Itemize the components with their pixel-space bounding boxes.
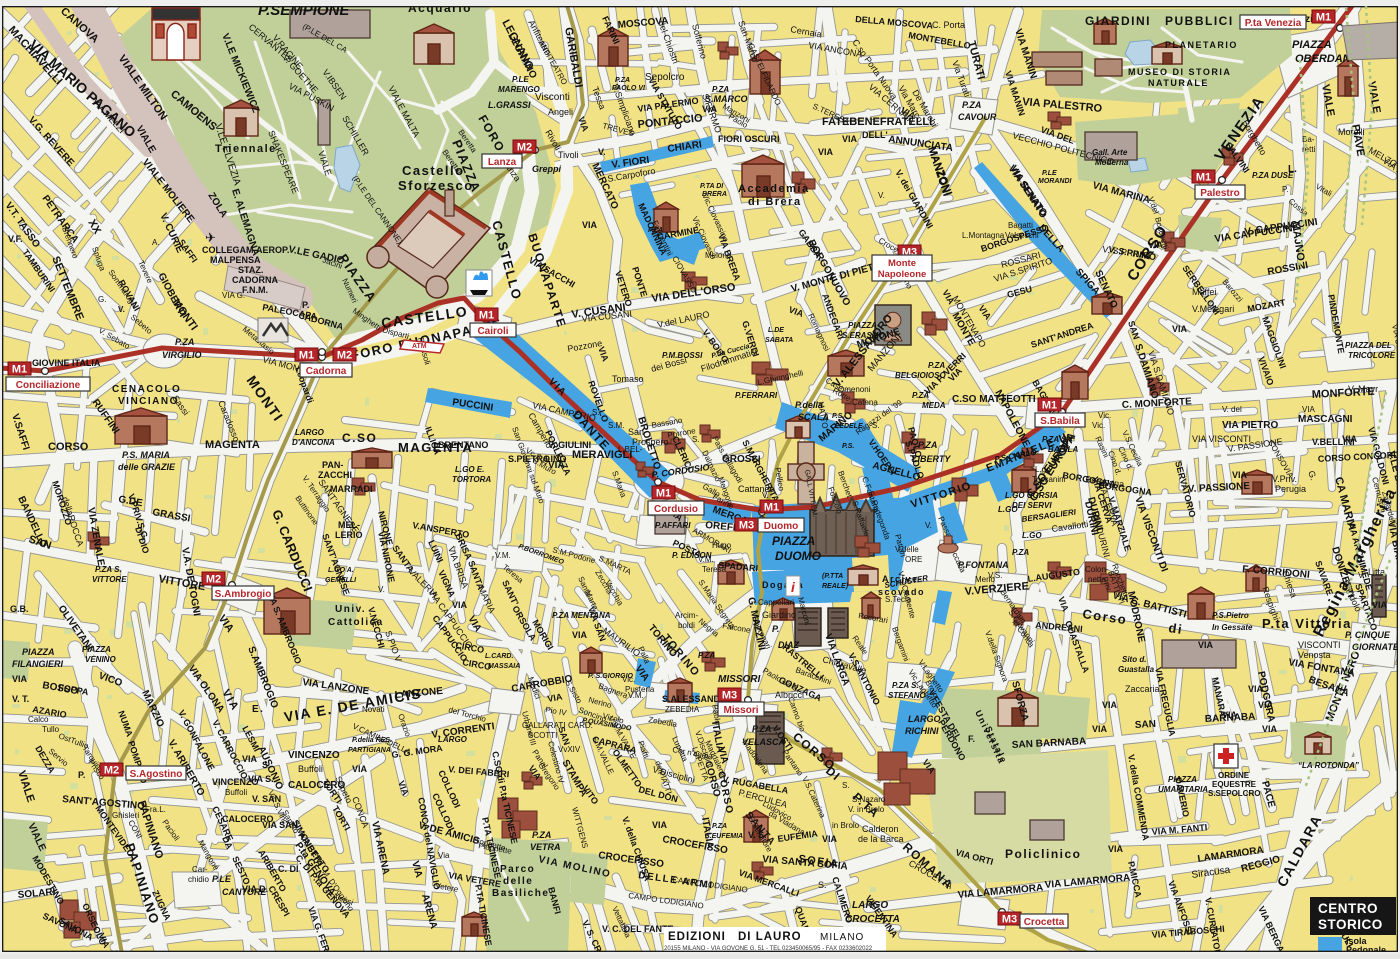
svg-text:P.S.: P.S.: [842, 443, 854, 450]
svg-text:C.SO: C.SO: [342, 431, 377, 445]
svg-text:M1: M1: [12, 364, 27, 376]
svg-text:CORSO: CORSO: [48, 441, 89, 453]
svg-text:Teresa: Teresa: [702, 565, 727, 574]
svg-text:VIA: VIA: [12, 674, 28, 684]
svg-text:M1: M1: [764, 502, 779, 514]
svg-text:VIA: VIA: [842, 134, 858, 144]
svg-text:Crocetta: Crocetta: [1024, 917, 1065, 928]
svg-text:VvXIV: VvXIV: [558, 745, 581, 754]
svg-text:In Gessate: In Gessate: [1212, 623, 1253, 632]
svg-text:M2: M2: [206, 574, 221, 586]
svg-text:V.: V.: [118, 305, 125, 314]
svg-text:L.GO E.: L.GO E.: [455, 465, 484, 474]
svg-text:TORTORA: TORTORA: [452, 475, 491, 484]
svg-text:V. del: V. del: [1222, 405, 1242, 414]
svg-text:S.M.: S.M.: [608, 421, 624, 430]
svg-text:PIAZZA: PIAZZA: [772, 534, 815, 548]
svg-text:C.SO MATTEOTTI: C.SO MATTEOTTI: [952, 394, 1036, 405]
svg-text:MASCAGNI: MASCAGNI: [1298, 414, 1353, 425]
svg-text:L.GRASSI: L.GRASSI: [488, 100, 531, 110]
svg-text:V. C. DEL FANTE: V. C. DEL FANTE: [602, 924, 674, 934]
svg-text:V.BELLINI: V.BELLINI: [1312, 437, 1355, 447]
svg-text:ORDINE: ORDINE: [1218, 771, 1250, 780]
svg-text:PAN-: PAN-: [322, 460, 343, 470]
svg-text:Duomo: Duomo: [764, 521, 798, 532]
svg-text:S.: S.: [818, 880, 827, 890]
svg-text:Venosta: Venosta: [1298, 650, 1331, 660]
svg-text:V.: V.: [878, 191, 885, 200]
svg-text:Giardino: Giardino: [762, 610, 796, 620]
svg-text:Conciliazione: Conciliazione: [16, 380, 81, 391]
svg-text:P.ZA: P.ZA: [698, 651, 715, 660]
svg-text:Monte: Monte: [888, 258, 916, 269]
svg-text:VIA: VIA: [242, 754, 258, 764]
svg-text:M3: M3: [739, 520, 754, 532]
svg-text:NATURALE: NATURALE: [1148, 78, 1209, 88]
svg-text:V.: V.: [598, 147, 606, 157]
svg-text:DUOMO: DUOMO: [775, 549, 822, 563]
svg-text:V. S.: V. S.: [748, 830, 767, 840]
svg-text:VIA SAN: VIA SAN: [262, 820, 298, 830]
svg-text:V.M.: V.M.: [628, 691, 644, 700]
svg-text:Sito d.: Sito d.: [1122, 655, 1146, 664]
svg-text:CAVOUR: CAVOUR: [958, 112, 997, 122]
svg-text:Cairoli: Cairoli: [477, 326, 508, 337]
svg-text:SAN: SAN: [1135, 719, 1157, 731]
svg-text:P.ZA MENTANA: P.ZA MENTANA: [552, 611, 611, 620]
svg-text:P.ZA: P.ZA: [532, 830, 551, 840]
svg-text:Univ.: Univ.: [335, 604, 366, 615]
svg-text:G.: G.: [98, 295, 106, 304]
svg-text:P.TA DI: P.TA DI: [700, 183, 724, 190]
svg-text:L.GO A.: L.GO A.: [328, 567, 354, 574]
svg-text:VIA: VIA: [822, 834, 838, 844]
svg-text:VIA: VIA: [1232, 470, 1248, 480]
svg-text:VIRGILIO: VIRGILIO: [162, 350, 202, 360]
svg-text:VINCIANO: VINCIANO: [118, 396, 179, 407]
svg-text:di Brera: di Brera: [748, 196, 802, 208]
svg-text:PIAZZA DEL: PIAZZA DEL: [1345, 341, 1392, 350]
svg-text:EDIZIONI: EDIZIONI: [668, 931, 726, 943]
svg-text:Triennale: Triennale: [215, 143, 277, 155]
svg-text:P.S. MARIA: P.S. MARIA: [122, 450, 170, 460]
svg-text:REALE): REALE): [822, 583, 849, 590]
svg-text:P.FERRARI: P.FERRARI: [735, 391, 778, 400]
svg-text:D'ANCONA: D'ANCONA: [292, 438, 335, 447]
svg-text:Visconti: Visconti: [535, 92, 570, 103]
svg-text:PIAZZA: PIAZZA: [82, 645, 111, 654]
svg-text:VIA: VIA: [1302, 405, 1316, 414]
svg-text:STAZ.: STAZ.: [238, 265, 263, 275]
svg-text:VIA VISCONTI: VIA VISCONTI: [1192, 434, 1251, 444]
svg-text:VIA: VIA: [1198, 640, 1214, 650]
svg-text:P.LE: P.LE: [1042, 170, 1057, 177]
svg-text:Calco: Calco: [28, 715, 49, 724]
svg-text:S.: S.: [842, 781, 850, 790]
svg-text:P.ZA DUSE: P.ZA DUSE: [1252, 171, 1294, 180]
svg-text:M1: M1: [656, 488, 671, 500]
svg-text:L.CARD.: L.CARD.: [485, 653, 513, 660]
svg-text:P.della: P.della: [795, 400, 823, 410]
svg-text:Cappellari: Cappellari: [758, 598, 794, 607]
svg-text:P.ZA: P.ZA: [648, 227, 663, 234]
svg-text:retti: retti: [1302, 145, 1316, 154]
svg-text:Sforzesco: Sforzesco: [398, 178, 474, 193]
svg-text:Tomaso: Tomaso: [612, 374, 644, 384]
svg-text:in Brolo: in Brolo: [832, 821, 860, 830]
svg-text:P.ZA S.: P.ZA S.: [95, 565, 122, 574]
svg-text:Cadorna: Cadorna: [306, 366, 347, 377]
svg-text:Novati: Novati: [362, 705, 385, 714]
svg-text:S.: S.: [262, 760, 271, 770]
svg-text:SCALA: SCALA: [798, 412, 829, 422]
svg-text:San: San: [628, 427, 644, 437]
svg-text:VIA: VIA: [452, 600, 468, 610]
svg-text:GIARDINI: GIARDINI: [1085, 14, 1151, 28]
svg-text:P.: P.: [772, 624, 779, 634]
svg-text:TRICOLORE: TRICOLORE: [1348, 351, 1396, 360]
svg-text:BRERA: BRERA: [702, 191, 727, 198]
svg-text:Tivoli: Tivoli: [558, 150, 579, 160]
svg-text:Arcive-: Arcive-: [882, 574, 923, 584]
svg-text:M2: M2: [104, 765, 119, 777]
svg-text:L.GO: L.GO: [1022, 531, 1042, 540]
svg-text:UMANITARIA: UMANITARIA: [1158, 785, 1208, 794]
svg-text:MISSORI: MISSORI: [718, 674, 760, 685]
svg-text:Zaccaria: Zaccaria: [1125, 684, 1160, 694]
svg-text:VETRA: VETRA: [530, 842, 561, 852]
svg-text:VIA: VIA: [1102, 700, 1118, 710]
svg-text:VISCONTI: VISCONTI: [1298, 640, 1341, 650]
svg-text:S.SEPOLCRO: S.SEPOLCRO: [1208, 789, 1260, 798]
svg-text:S.PIETRO: S.PIETRO: [508, 454, 550, 464]
svg-text:CADORNA: CADORNA: [232, 275, 278, 285]
svg-text:Guastalla: Guastalla: [1118, 665, 1155, 674]
svg-text:DIAZ: DIAZ: [778, 640, 799, 650]
svg-text:P.ZA: P.ZA: [1012, 548, 1029, 557]
svg-text:C. Porta: C. Porta: [932, 20, 965, 30]
svg-text:VIA: VIA: [1092, 724, 1108, 734]
svg-text:VIA: VIA: [1248, 684, 1264, 694]
svg-text:SABATA: SABATA: [765, 337, 793, 344]
svg-text:P.S.Pietro: P.S.Pietro: [1212, 611, 1249, 620]
svg-text:C. DI: C. DI: [278, 864, 299, 874]
svg-text:Policlinico: Policlinico: [1005, 847, 1082, 861]
svg-text:VIA: VIA: [652, 820, 668, 830]
svg-text:P.LE: P.LE: [212, 874, 232, 884]
svg-text:VIA PIETRO: VIA PIETRO: [1222, 420, 1279, 431]
svg-text:V.: V.: [925, 521, 932, 530]
svg-text:MORANDI: MORANDI: [1038, 178, 1072, 185]
svg-text:M2: M2: [517, 142, 532, 154]
svg-text:VINCENZO: VINCENZO: [288, 750, 340, 761]
svg-text:V.F.: V.F.: [8, 234, 23, 244]
svg-text:P.ZA: P.ZA: [752, 724, 771, 734]
svg-text:GIORNATE: GIORNATE: [1352, 642, 1400, 652]
svg-text:V. T.: V. T.: [12, 694, 29, 704]
svg-text:PARTIGIANA: PARTIGIANA: [348, 747, 391, 754]
svg-text:E.: E.: [252, 704, 264, 715]
svg-text:DEI SERVI: DEI SERVI: [1012, 501, 1052, 510]
svg-text:DELL': DELL': [862, 130, 888, 140]
svg-text:V.: V.: [378, 585, 385, 594]
svg-text:Accademia: Accademia: [738, 183, 810, 195]
svg-text:scovado: scovado: [878, 587, 925, 597]
svg-text:Perugia: Perugia: [1275, 484, 1306, 494]
svg-text:chidio: chidio: [188, 875, 209, 884]
svg-text:VIA: VIA: [1148, 240, 1164, 250]
svg-text:FIORI OSCURI: FIORI OSCURI: [718, 134, 780, 144]
svg-text:Tullo: Tullo: [42, 725, 60, 734]
svg-text:Parco: Parco: [500, 864, 535, 875]
svg-text:DI LAURO: DI LAURO: [738, 931, 802, 943]
svg-text:P.ZA: P.ZA: [615, 77, 630, 84]
svg-text:Lanza: Lanza: [488, 157, 517, 168]
svg-text:M1: M1: [1196, 172, 1211, 184]
svg-text:P. CINQUE: P. CINQUE: [1345, 630, 1391, 640]
svg-text:M3: M3: [722, 690, 737, 702]
svg-text:VITTORE: VITTORE: [92, 575, 127, 584]
svg-text:VIA D.: VIA D.: [242, 884, 268, 894]
svg-text:P.: P.: [78, 770, 85, 780]
svg-text:Missori: Missori: [723, 705, 758, 716]
svg-text:Angeli: Angeli: [548, 107, 573, 117]
svg-text:M1: M1: [479, 310, 494, 322]
svg-text:F.N.M.: F.N.M.: [242, 285, 268, 295]
svg-text:PIAZZA: PIAZZA: [1292, 39, 1332, 51]
svg-text:MAGENTA: MAGENTA: [205, 439, 260, 451]
svg-text:OBERDAN: OBERDAN: [1295, 53, 1352, 65]
svg-text:VIA G.: VIA G.: [222, 291, 245, 300]
svg-text:VIA: VIA: [572, 630, 588, 640]
svg-text:PUBBLICI: PUBBLICI: [1165, 14, 1234, 28]
svg-text:VIA: VIA: [582, 220, 598, 230]
svg-text:MERAVIGLI: MERAVIGLI: [572, 449, 632, 461]
svg-text:PLANETARIO: PLANETARIO: [1165, 40, 1238, 50]
svg-text:GIOVINE ITALIA: GIOVINE ITALIA: [32, 358, 101, 368]
svg-text:S.Agostino: S.Agostino: [130, 769, 183, 780]
svg-text:S.: S.: [692, 435, 700, 444]
svg-text:MAGENTA: MAGENTA: [398, 440, 473, 455]
svg-text:de la Barca: de la Barca: [858, 834, 904, 844]
svg-text:di: di: [1168, 620, 1185, 637]
svg-text:V.M.: V.M.: [495, 551, 511, 560]
svg-text:Buffoli: Buffoli: [298, 764, 323, 774]
svg-text:CENACOLO: CENACOLO: [112, 384, 181, 395]
svg-text:S.Babila: S.Babila: [1040, 416, 1080, 427]
svg-text:Ba-: Ba-: [1302, 135, 1315, 144]
svg-text:VELASCA: VELASCA: [742, 737, 785, 747]
svg-text:MARRADI: MARRADI: [330, 484, 373, 494]
svg-text:P.: P.: [1282, 185, 1289, 194]
svg-text:ORE: ORE: [905, 555, 922, 564]
svg-text:P.AFFARI: P.AFFARI: [655, 521, 691, 530]
svg-text:delle GRAZIE: delle GRAZIE: [118, 462, 176, 472]
svg-text:M1: M1: [1042, 400, 1057, 412]
svg-text:Buffoli: Buffoli: [225, 788, 247, 797]
svg-text:PAOLO VI: PAOLO VI: [612, 85, 646, 92]
svg-text:COLLEGAM.AEROP.: COLLEGAM.AEROP.: [202, 245, 289, 255]
svg-text:Valsecchi: Valsecchi: [1005, 231, 1039, 240]
svg-text:Moderna: Moderna: [1095, 158, 1129, 167]
svg-text:M3: M3: [1002, 914, 1017, 926]
svg-text:VIA: VIA: [1222, 710, 1238, 720]
svg-text:✈: ✈: [205, 230, 216, 245]
svg-text:Cattaneo: Cattaneo: [738, 484, 775, 494]
svg-text:Gall. Arte: Gall. Arte: [1092, 148, 1128, 157]
svg-text:P.: P.: [302, 300, 309, 310]
svg-text:“LA ROTONDA”: “LA ROTONDA”: [1298, 761, 1359, 770]
svg-text:VIA: VIA: [1108, 844, 1124, 854]
svg-text:Car-: Car-: [192, 865, 208, 874]
svg-text:EQUESTRE: EQUESTRE: [1212, 780, 1257, 789]
svg-text:L.Montagna: L.Montagna: [962, 231, 1005, 240]
svg-text:FILANGIERI: FILANGIERI: [12, 659, 63, 669]
svg-text:Via: Via: [438, 851, 450, 860]
svg-text:Catena: Catena: [852, 398, 878, 407]
svg-text:LERIO: LERIO: [335, 530, 363, 540]
svg-text:Cattolica: Cattolica: [328, 617, 384, 628]
svg-text:delle: delle: [503, 876, 533, 887]
svg-text:VIA: VIA: [818, 147, 834, 157]
svg-text:VIA: VIA: [1172, 324, 1188, 334]
svg-text:P.ta Venezia: P.ta Venezia: [1245, 18, 1302, 29]
svg-text:P.ZA: P.ZA: [712, 85, 729, 94]
svg-text:V. Mayr: V. Mayr: [1348, 384, 1378, 394]
svg-text:VENINO: VENINO: [85, 655, 116, 664]
svg-text:S.Ambrogio: S.Ambrogio: [215, 589, 272, 600]
svg-text:MASSAIA: MASSAIA: [488, 663, 520, 670]
svg-text:RICHINI: RICHINI: [905, 726, 939, 736]
svg-text:Arcim-: Arcim-: [675, 611, 698, 620]
svg-text:P.ZA: P.ZA: [962, 100, 981, 110]
svg-text:P. EDISON: P. EDISON: [672, 551, 712, 560]
svg-text:STORICO: STORICO: [1318, 917, 1383, 932]
svg-text:G.B.: G.B.: [10, 604, 29, 614]
svg-text:MEDA: MEDA: [922, 401, 946, 410]
svg-text:(P.TTA: (P.TTA: [822, 573, 843, 580]
svg-text:M2: M2: [337, 350, 352, 362]
svg-text:LARGO: LARGO: [908, 714, 941, 724]
svg-text:LARGO: LARGO: [295, 428, 325, 437]
svg-text:PIAZZA: PIAZZA: [1168, 775, 1197, 784]
svg-text:Vic.: Vic.: [622, 675, 635, 684]
svg-text:MALPENSA: MALPENSA: [210, 255, 261, 265]
svg-text:MILANO: MILANO: [820, 932, 864, 943]
svg-text:LARGO: LARGO: [438, 735, 468, 744]
svg-text:Basiliche: Basiliche: [492, 888, 549, 899]
svg-text:A.: A.: [152, 238, 160, 247]
svg-text:V.S.: V.S.: [988, 571, 1002, 580]
svg-text:VIA: VIA: [352, 764, 368, 774]
svg-text:P.ZA: P.ZA: [175, 337, 194, 347]
svg-text:M1: M1: [299, 350, 314, 362]
svg-text:Vic.: Vic.: [1092, 421, 1105, 430]
svg-text:GEMELLI: GEMELLI: [325, 577, 357, 584]
svg-text:LINO: LINO: [545, 454, 567, 464]
svg-text:GROS-: GROS-: [722, 454, 755, 465]
svg-text:boldi: boldi: [678, 621, 695, 630]
svg-text:V.: V.: [762, 491, 769, 500]
svg-text:P.ZA: P.ZA: [712, 823, 727, 830]
svg-text:Cordusio: Cordusio: [654, 504, 698, 515]
svg-text:MUSEO DI STORIA: MUSEO DI STORIA: [1128, 67, 1231, 77]
svg-text:VIA: VIA: [1262, 724, 1278, 734]
svg-text:Vic.: Vic.: [1098, 411, 1111, 420]
svg-text:VIA: VIA: [1258, 700, 1274, 710]
svg-text:L.DE: L.DE: [768, 327, 784, 334]
svg-text:F.: F.: [968, 734, 975, 744]
svg-text:Greppi: Greppi: [532, 164, 562, 174]
svg-text:PIAZZA: PIAZZA: [22, 647, 55, 657]
svg-text:Napoleone: Napoleone: [878, 269, 927, 280]
svg-text:Colon-: Colon-: [1085, 565, 1109, 574]
svg-text:ZEBEDIA: ZEBEDIA: [665, 705, 700, 714]
svg-text:Bagatti: Bagatti: [1008, 221, 1033, 230]
svg-text:Calderon: Calderon: [862, 824, 899, 834]
svg-text:CENTRO: CENTRO: [1318, 901, 1378, 916]
svg-text:ATM: ATM: [412, 343, 427, 350]
svg-text:M1: M1: [1316, 12, 1331, 24]
svg-text:Palestro: Palestro: [1200, 188, 1239, 199]
